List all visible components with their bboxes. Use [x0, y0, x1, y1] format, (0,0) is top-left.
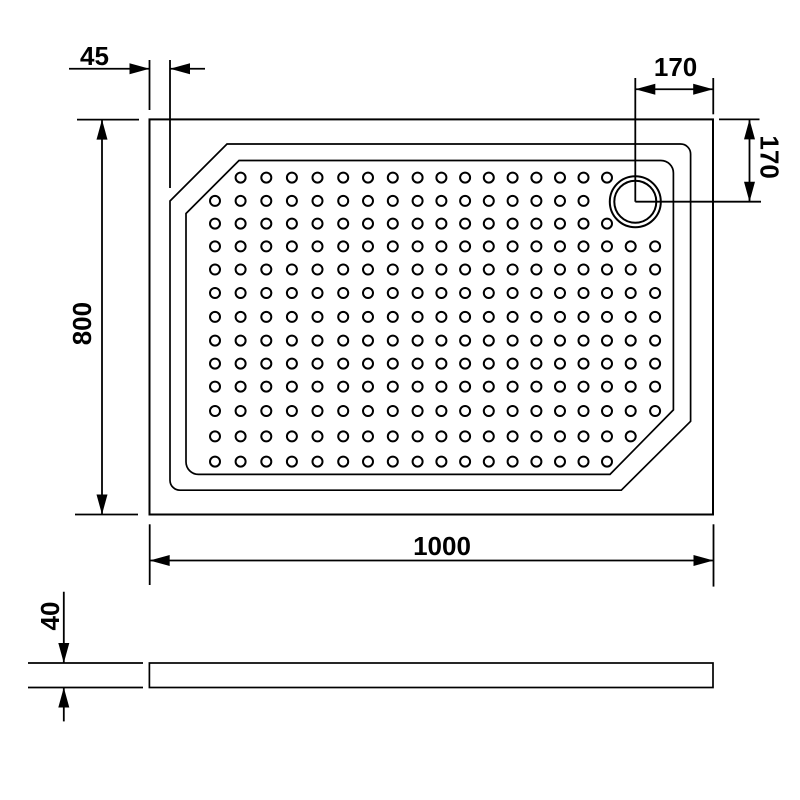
svg-text:1000: 1000	[413, 531, 471, 561]
svg-text:45: 45	[80, 41, 109, 71]
svg-text:40: 40	[35, 602, 65, 631]
svg-text:170: 170	[654, 52, 697, 82]
svg-text:800: 800	[67, 302, 97, 345]
svg-text:170: 170	[755, 135, 785, 178]
